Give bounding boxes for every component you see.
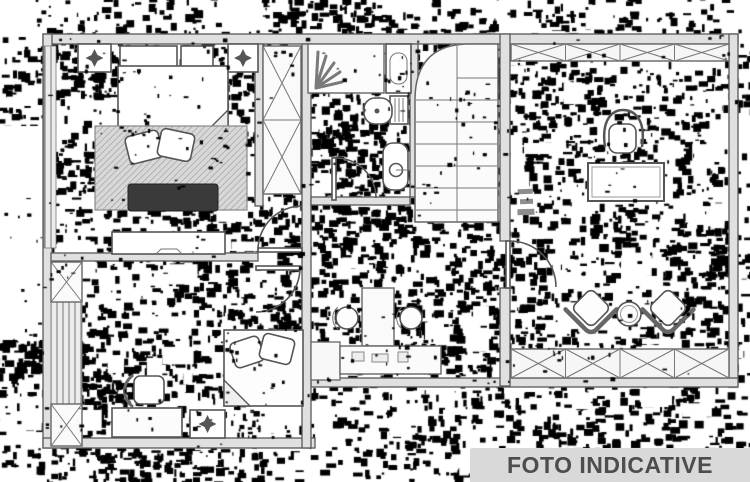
watermark-banner: FOTO INDICATIVE [470, 448, 750, 482]
noise-layer-over [0, 0, 750, 482]
watermark-text: FOTO INDICATIVE [507, 452, 713, 479]
floor-plan-photo: FOTO INDICATIVE [0, 0, 750, 482]
